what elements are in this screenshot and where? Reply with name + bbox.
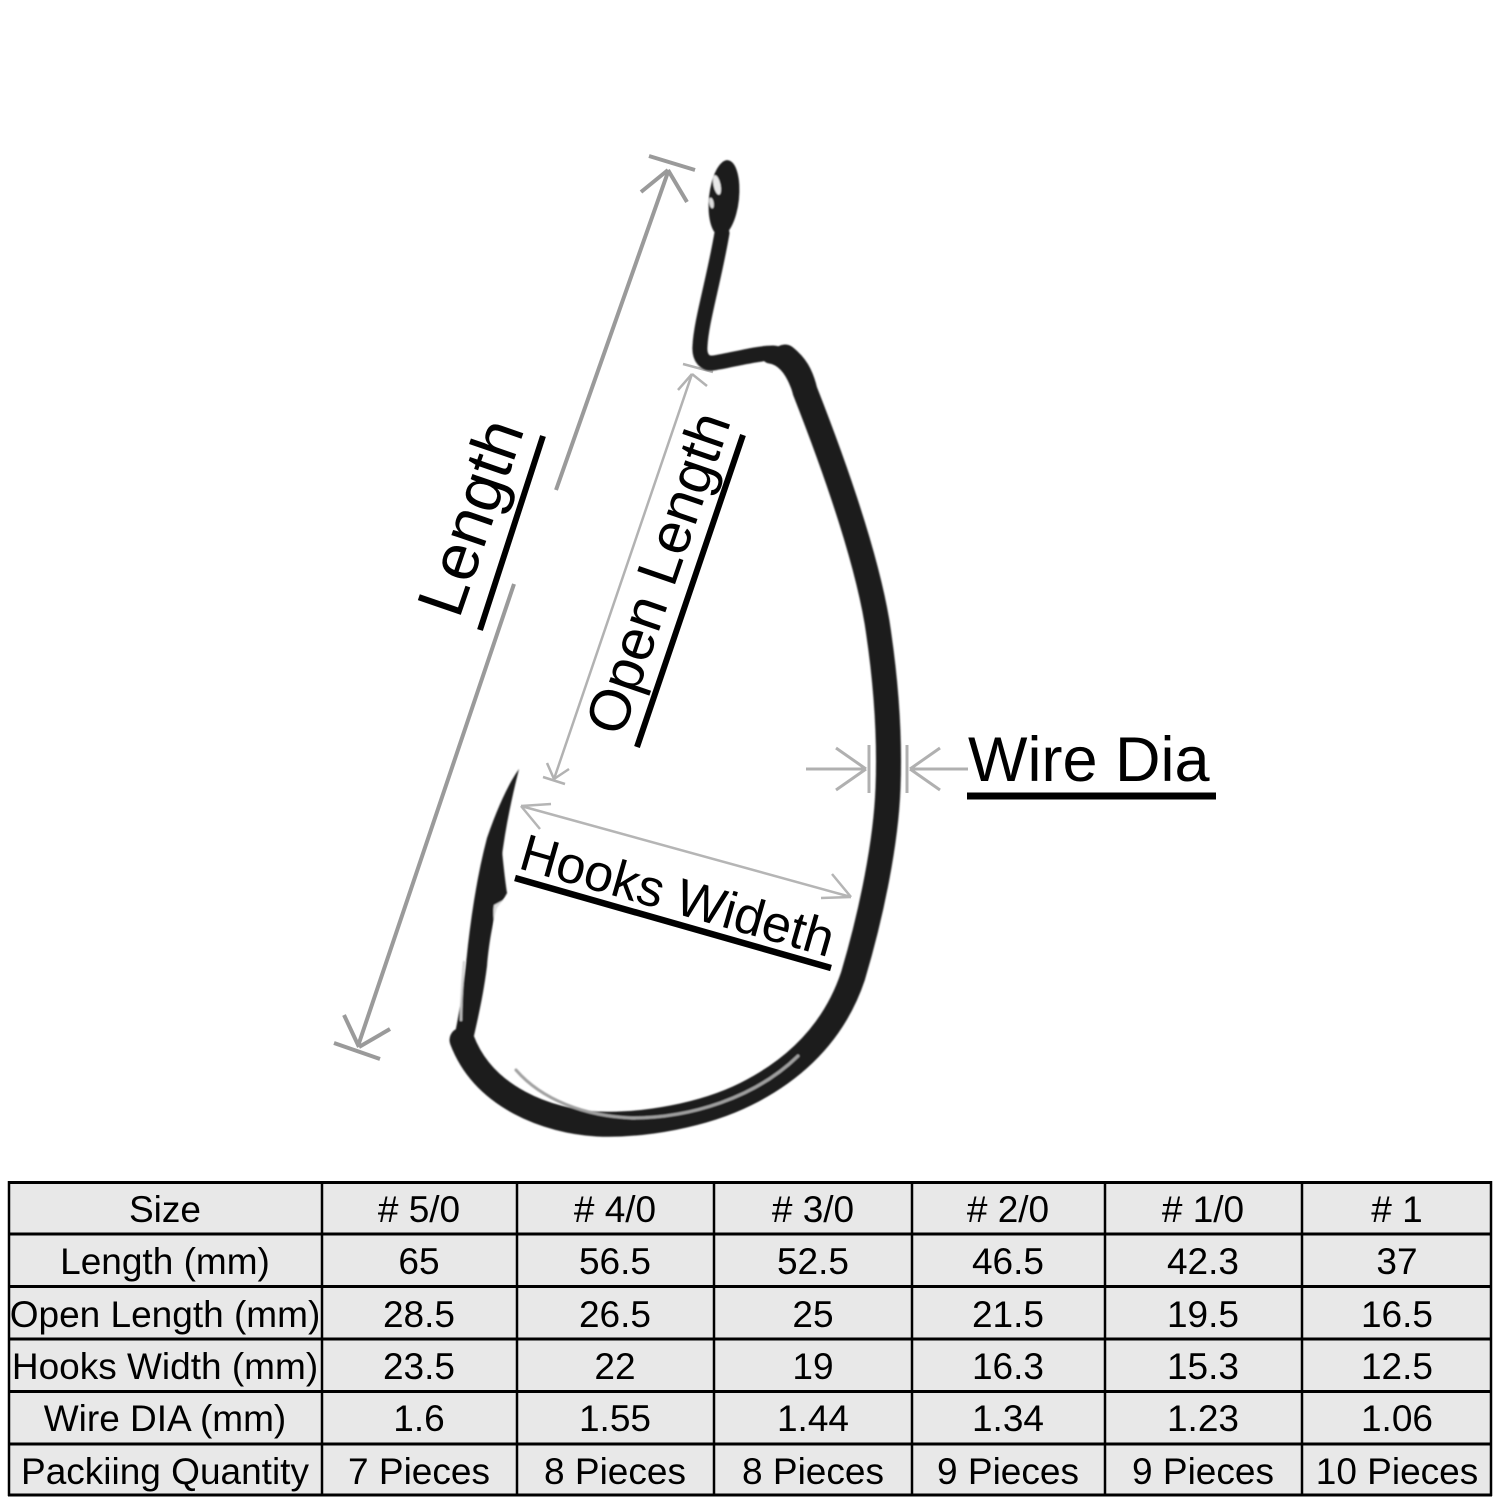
svg-text:8 Pieces: 8 Pieces [544,1451,686,1492]
svg-text:65: 65 [398,1241,439,1282]
svg-text:# 2/0: # 2/0 [967,1189,1049,1230]
svg-text:21.5: 21.5 [972,1294,1044,1335]
svg-text:Length (mm): Length (mm) [60,1241,270,1282]
svg-text:1.34: 1.34 [972,1398,1044,1439]
svg-text:Open Length (mm): Open Length (mm) [10,1294,321,1335]
svg-text:37: 37 [1376,1241,1417,1282]
svg-text:25: 25 [792,1294,833,1335]
svg-text:10 Pieces: 10 Pieces [1316,1451,1479,1492]
svg-text:26.5: 26.5 [579,1294,651,1335]
svg-text:15.3: 15.3 [1167,1346,1239,1387]
svg-text:28.5: 28.5 [383,1294,455,1335]
svg-text:19.5: 19.5 [1167,1294,1239,1335]
svg-text:Wire Dia: Wire Dia [968,725,1210,795]
svg-text:Wire DIA (mm): Wire DIA (mm) [44,1398,287,1439]
svg-text:# 4/0: # 4/0 [574,1189,656,1230]
svg-text:Packiing Quantity: Packiing Quantity [21,1451,309,1492]
svg-text:1.44: 1.44 [777,1398,849,1439]
svg-text:9 Pieces: 9 Pieces [937,1451,1079,1492]
svg-text:Hooks Width (mm): Hooks Width (mm) [12,1346,318,1387]
svg-text:7 Pieces: 7 Pieces [348,1451,490,1492]
svg-text:22: 22 [594,1346,635,1387]
svg-text:46.5: 46.5 [972,1241,1044,1282]
svg-text:# 1/0: # 1/0 [1162,1189,1244,1230]
svg-text:42.3: 42.3 [1167,1241,1239,1282]
svg-text:1.23: 1.23 [1167,1398,1239,1439]
svg-text:# 5/0: # 5/0 [378,1189,460,1230]
svg-text:52.5: 52.5 [777,1241,849,1282]
svg-text:16.5: 16.5 [1361,1294,1433,1335]
svg-text:23.5: 23.5 [383,1346,455,1387]
svg-text:1.06: 1.06 [1361,1398,1433,1439]
svg-text:# 3/0: # 3/0 [772,1189,854,1230]
svg-text:56.5: 56.5 [579,1241,651,1282]
svg-text:1.6: 1.6 [393,1398,444,1439]
svg-text:16.3: 16.3 [972,1346,1044,1387]
svg-text:12.5: 12.5 [1361,1346,1433,1387]
svg-text:9 Pieces: 9 Pieces [1132,1451,1274,1492]
svg-text:8 Pieces: 8 Pieces [742,1451,884,1492]
svg-text:19: 19 [792,1346,833,1387]
svg-text:# 1: # 1 [1371,1189,1422,1230]
svg-text:1.55: 1.55 [579,1398,651,1439]
svg-text:Size: Size [129,1189,201,1230]
